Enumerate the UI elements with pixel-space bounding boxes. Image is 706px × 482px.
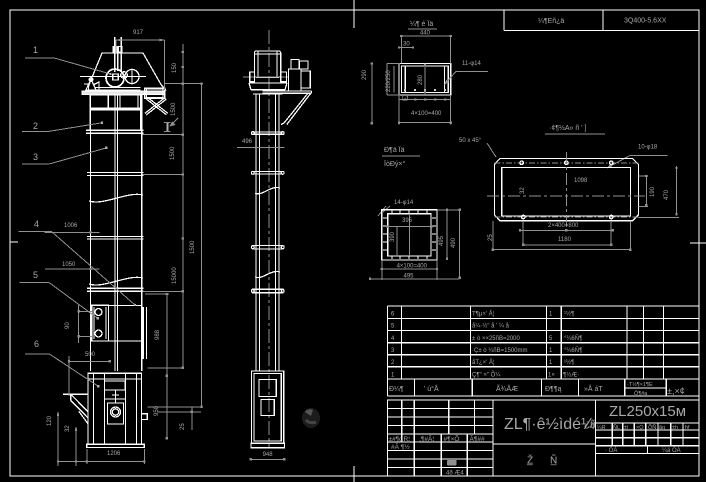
- svg-text:1206: 1206: [107, 451, 121, 457]
- svg-text:988: 988: [155, 329, 161, 340]
- svg-text:¼ä ÕÁ: ¼ä ÕÁ: [662, 447, 681, 454]
- svg-text:ħf: ħf: [685, 425, 690, 431]
- svg-text:6: 6: [34, 339, 39, 349]
- svg-text:1500: 1500: [170, 146, 176, 160]
- svg-text:LJ: LJ: [402, 97, 408, 103]
- svg-text:470: 470: [664, 189, 670, 200]
- svg-text:190: 190: [650, 186, 656, 197]
- svg-text:· ÕÁ: · ÕÁ: [605, 447, 617, 454]
- svg-text:25: 25: [180, 423, 186, 430]
- svg-text:±,×¢: ±,×¢: [667, 386, 685, 396]
- svg-text:10-φ18: 10-φ18: [638, 145, 658, 151]
- svg-text:ÑL: ÑL: [613, 424, 620, 431]
- svg-text:°¼6Ñ¶: °¼6Ñ¶: [564, 335, 582, 342]
- svg-text:Ð¶ä Ïä: Ð¶ä Ïä: [384, 146, 405, 154]
- svg-text:¼¶ é Ïä: ¼¶ é Ïä: [410, 20, 433, 28]
- svg-text:3: 3: [33, 152, 38, 162]
- svg-text:ÏòÐý×°: ÏòÐý×°: [384, 160, 405, 168]
- svg-text:±h: ±h: [672, 425, 678, 431]
- svg-text:±ì: ±ì: [624, 425, 629, 431]
- svg-text:1050: 1050: [62, 262, 76, 268]
- svg-text:Ç¶" ×" Õ¼: Ç¶" ×" Õ¼: [472, 371, 501, 378]
- svg-text:1: 1: [33, 45, 38, 55]
- svg-text:390: 390: [390, 231, 396, 242]
- svg-text:496: 496: [242, 139, 253, 145]
- svg-text:917: 917: [133, 30, 144, 36]
- svg-text:ãg: ãg: [659, 425, 665, 431]
- svg-text:4ð Æ4: 4ð Æ4: [446, 470, 464, 477]
- svg-text:32: 32: [65, 425, 71, 432]
- svg-text:3Q400-5.6XX: 3Q400-5.6XX: [624, 18, 667, 25]
- svg-text:ZL250x15м: ZL250x15м: [609, 403, 686, 420]
- svg-text:Ô¶#ą: Ô¶#ą: [634, 390, 648, 397]
- svg-text:1098: 1098: [574, 178, 588, 184]
- svg-text:1500: 1500: [171, 102, 177, 116]
- svg-text:_,¶#Ã¦: _,¶#Ã¦: [415, 434, 435, 443]
- svg-text:290: 290: [362, 69, 368, 80]
- svg-text:Ž̲: Ž̲: [527, 454, 533, 467]
- svg-text:1×: 1×: [548, 372, 555, 378]
- svg-text:440: 440: [420, 31, 431, 37]
- svg-text:¼R: ¼R: [597, 425, 606, 431]
- svg-text:950: 950: [154, 405, 160, 416]
- svg-text:495: 495: [439, 235, 445, 246]
- svg-text:90: 90: [65, 322, 71, 329]
- svg-text:#¶×Õ: #¶×Õ: [444, 434, 460, 443]
- svg-text:R¦: R¦: [404, 436, 411, 443]
- svg-text:å¼·½" å ' ¼ å: å¼·½" å ' ¼ å: [472, 323, 510, 330]
- svg-text:T¶µ×' Å¦: T¶µ×' Å¦: [472, 311, 495, 318]
- svg-text:395: 395: [402, 218, 413, 224]
- svg-text:4: 4: [34, 219, 39, 229]
- svg-text:2×400=800: 2×400=800: [548, 223, 579, 229]
- svg-text:2: 2: [33, 121, 38, 131]
- svg-text:948: 948: [263, 452, 274, 458]
- svg-text:åT¿×' Å¦: åT¿×' Å¦: [472, 359, 495, 366]
- svg-text:30: 30: [403, 42, 410, 48]
- svg-text:Ð¼¶: Ð¼¶: [389, 386, 404, 393]
- svg-text:490: 490: [451, 237, 457, 248]
- svg-text:Ñ̲: Ñ̲: [550, 454, 557, 467]
- svg-text:280: 280: [418, 74, 424, 85]
- svg-text:14-φ14: 14-φ14: [394, 200, 414, 206]
- svg-text:1006: 1006: [64, 223, 78, 229]
- svg-text:ÕÑ: ÕÑ: [648, 424, 656, 431]
- svg-text:¿ñ: ¿ñ: [584, 419, 596, 430]
- svg-text:32: 32: [520, 187, 526, 194]
- svg-text:11-φ14: 11-φ14: [462, 61, 481, 67]
- svg-text:¶½Æ·: ¶½Æ·: [563, 371, 579, 378]
- svg-text:' ú°Å: ' ú°Å: [424, 384, 439, 393]
- svg-text:50 x 45°: 50 x 45°: [459, 138, 482, 144]
- svg-text:ZL¶·ê½ìdé¼: ZL¶·ê½ìdé¼: [504, 416, 595, 433]
- svg-text:·¢¶½A» ñ ' ]: ·¢¶½A» ñ ' ]: [549, 124, 586, 132]
- svg-text:Ã¾ÅÆ: Ã¾ÅÆ: [496, 384, 518, 393]
- svg-text:»Å áT: »Å áT: [584, 384, 603, 393]
- svg-text:120: 120: [47, 415, 53, 426]
- svg-text:1180: 1180: [558, 237, 572, 243]
- svg-text:Ã¶##: Ã¶##: [470, 434, 485, 443]
- svg-text:5: 5: [33, 270, 38, 280]
- svg-text:#Ã ¶½: #Ã ¶½: [391, 442, 410, 451]
- svg-text:×Q: ×Q: [636, 425, 644, 431]
- svg-text:± ò ××25ñB=2000: ± ò ××25ñB=2000: [472, 336, 520, 342]
- svg-text:¹½¶: ¹½¶: [564, 359, 574, 366]
- svg-text:4×100=400: 4×100=400: [411, 111, 442, 117]
- svg-text:·Ç± ò ¼ñB=1500mm: ·Ç± ò ¼ñB=1500mm: [472, 348, 528, 354]
- svg-text:¼¶Eñ¿ä: ¼¶Eñ¿ä: [538, 18, 564, 25]
- svg-text:·T½¶×1¶E: ·T½¶×1¶E: [627, 381, 653, 388]
- svg-text:±#¶ç: ±#¶ç: [389, 436, 404, 443]
- svg-text:1500: 1500: [190, 240, 196, 254]
- svg-text:150: 150: [172, 62, 178, 73]
- svg-text:220/250: 220/250: [386, 70, 392, 92]
- svg-text:500: 500: [85, 352, 96, 358]
- svg-text:Ð¶¶ą: Ð¶¶ą: [545, 386, 562, 393]
- svg-text:°¼6Ñ¶: °¼6Ñ¶: [564, 347, 582, 354]
- svg-text:15000: 15000: [172, 267, 178, 284]
- svg-text:¹½¶: ¹½¶: [564, 311, 574, 318]
